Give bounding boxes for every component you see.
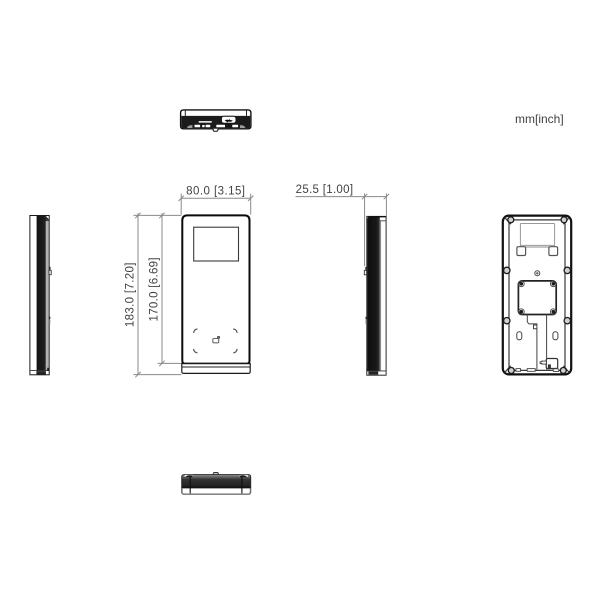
svg-text:183.0 [7.20]: 183.0 [7.20] (125, 262, 137, 327)
svg-text:mm[inch]: mm[inch] (515, 112, 564, 126)
svg-text:170.0 [6.69]: 170.0 [6.69] (148, 257, 160, 321)
svg-text:25.5 [1.00]: 25.5 [1.00] (296, 184, 354, 196)
svg-text:80.0 [3.15]: 80.0 [3.15] (186, 185, 245, 197)
